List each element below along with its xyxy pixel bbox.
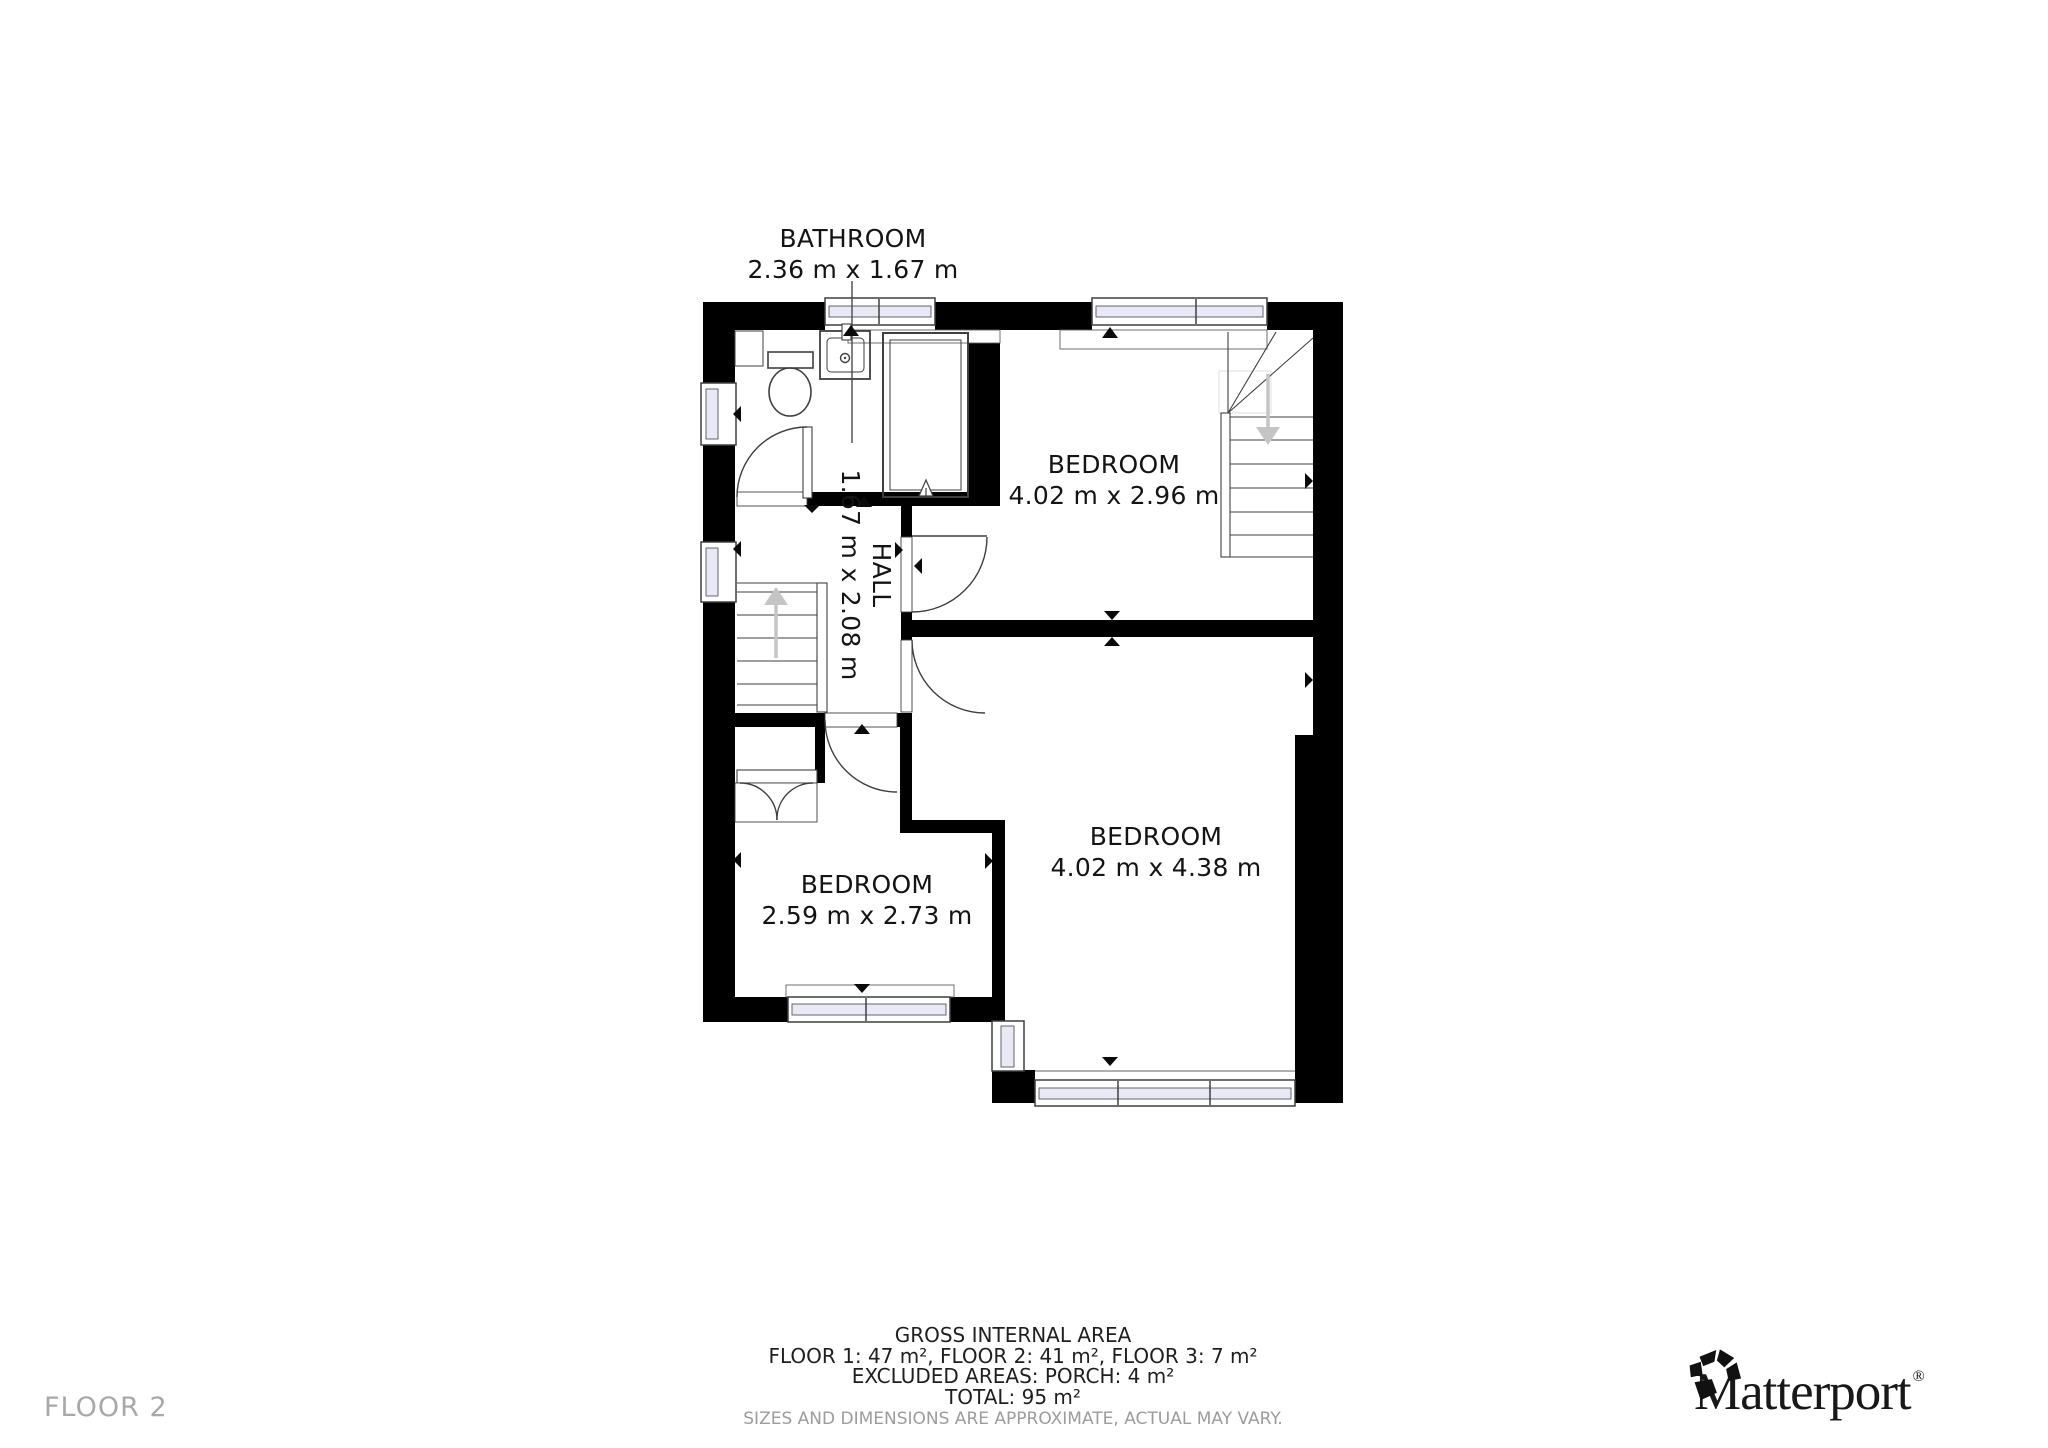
room-label-bedroom-top: BEDROOM 4.02 m x 2.96 m [1008,449,1219,511]
matterport-pinwheel-icon [1684,1344,1746,1408]
window-bedroom-left-bottom [788,997,950,1022]
area-summary-total: TOTAL: 95 m² [743,1387,1282,1408]
hall-stairs-up-arrow-icon [764,587,788,658]
disclaimer-text: SIZES AND DIMENSIONS ARE APPROXIMATE, AC… [743,1409,1282,1430]
floor-label: FLOOR 2 [44,1392,168,1423]
room-dimensions: 1.67 m x 2.08 m [835,469,866,680]
closet-bifold-doors [735,770,817,822]
window-bathroom-top [825,298,935,325]
room-label-bathroom: BATHROOM 2.36 m x 1.67 m [747,223,958,285]
floorplan-page: BATHROOM 2.36 m x 1.67 m BEDROOM 4.02 m … [0,0,2048,1448]
room-dimensions: 4.02 m x 2.96 m [1008,480,1219,511]
area-summary-excluded: EXCLUDED AREAS: PORCH: 4 m² [743,1366,1282,1387]
exterior-walls [703,302,1343,1103]
room-name: BEDROOM [1008,449,1219,480]
room-label-bedroom-left: BEDROOM 2.59 m x 2.73 m [761,869,972,931]
room-label-hall: HALL 1.67 m x 2.08 m [835,469,897,680]
staircase-upper [1219,332,1313,557]
registered-mark: ® [1913,1368,1925,1385]
window-side-return [992,1021,1024,1071]
room-dimensions: 2.36 m x 1.67 m [747,254,958,285]
area-summary: GROSS INTERNAL AREA FLOOR 1: 47 m², FLOO… [743,1325,1282,1430]
room-name: BEDROOM [1050,821,1261,852]
door-bedroom-top [901,536,987,612]
window-bedroom-right-bottom [1035,1080,1295,1106]
room-dimensions: 2.59 m x 2.73 m [761,900,972,931]
toilet-icon [768,352,813,416]
area-summary-floors: FLOOR 1: 47 m², FLOOR 2: 41 m², FLOOR 3:… [743,1346,1282,1367]
door-bedroom-left [825,713,897,792]
window-reveals [786,330,1295,1071]
window-hall-left [701,542,736,602]
door-bathroom [737,427,812,506]
staircase-hall [737,583,827,712]
window-bathroom-left [701,383,736,445]
door-bedroom-right [901,640,985,713]
room-label-bedroom-right: BEDROOM 4.02 m x 4.38 m [1050,821,1261,883]
window-bedroom-top [1092,298,1267,325]
bathroom-cabinet [735,331,763,366]
room-name: BATHROOM [747,223,958,254]
room-dimensions: 4.02 m x 4.38 m [1050,852,1261,883]
floor-plan-drawing [0,0,2048,1448]
room-name: BEDROOM [761,869,972,900]
room-name: HALL [866,469,897,680]
area-summary-title: GROSS INTERNAL AREA [743,1325,1282,1346]
matterport-logo: Matterport® [1684,1344,1925,1425]
